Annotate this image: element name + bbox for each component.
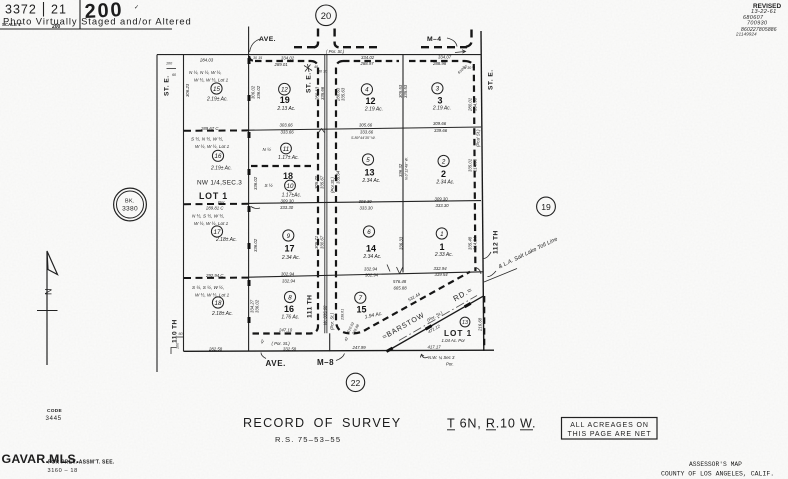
svg-text:335.67: 335.67 — [320, 175, 325, 189]
svg-text:21: 21 — [51, 3, 67, 17]
svg-text:336.02: 336.02 — [255, 299, 260, 313]
svg-text:302.94: 302.94 — [281, 272, 295, 277]
svg-text:ST. E.: ST. E. — [306, 72, 313, 93]
svg-text:N: N — [44, 289, 54, 296]
svg-text:333.66: 333.66 — [360, 130, 374, 135]
svg-text:330.67: 330.67 — [320, 235, 325, 249]
svg-text:339.66: 339.66 — [434, 128, 448, 133]
svg-text:332.58: 332.58 — [283, 346, 297, 351]
svg-text:22: 22 — [351, 378, 361, 388]
svg-text:17: 17 — [214, 229, 221, 236]
svg-text:9: 9 — [287, 233, 291, 240]
svg-text:ST. E.: ST. E. — [488, 69, 495, 90]
svg-text:1.76 Ac.: 1.76 Ac. — [281, 314, 299, 320]
svg-text:247.10: 247.10 — [278, 327, 293, 332]
svg-text:8: 8 — [288, 294, 292, 301]
svg-text:334.02: 334.02 — [361, 55, 375, 60]
svg-text:RECORD OF SURVEY: RECORD OF SURVEY — [243, 416, 401, 430]
svg-text:216.68: 216.68 — [478, 317, 483, 332]
svg-text:Por.: Por. — [218, 200, 226, 205]
svg-text:R.S. 75–53–55: R.S. 75–53–55 — [275, 435, 341, 444]
svg-text:3: 3 — [437, 95, 442, 105]
svg-text:15: 15 — [213, 86, 220, 93]
svg-text:100: 100 — [166, 62, 173, 66]
svg-text:332.94: 332.94 — [282, 279, 296, 284]
svg-text:COUNTY OF LOS ANGELES, CALIF.: COUNTY OF LOS ANGELES, CALIF. — [661, 470, 774, 477]
svg-text:1.04 Ac. Por: 1.04 Ac. Por — [442, 338, 466, 343]
svg-text:Por.: Por. — [446, 361, 454, 366]
svg-text:1: 1 — [440, 231, 443, 238]
svg-text:Photo Virtually Staged and/or: Photo Virtually Staged and/or Altered — [3, 16, 192, 27]
svg-text:2.34 Ac.: 2.34 Ac. — [435, 179, 454, 185]
svg-text:2.19 Ac.: 2.19 Ac. — [364, 106, 383, 112]
svg-text:15: 15 — [356, 304, 366, 314]
svg-text:2.18± Ac.: 2.18± Ac. — [215, 237, 237, 243]
svg-text:12: 12 — [281, 87, 288, 94]
svg-text:335.64: 335.64 — [336, 170, 341, 184]
svg-text:305.71: 305.71 — [314, 235, 319, 249]
svg-text:2.19± Ac.: 2.19± Ac. — [210, 166, 232, 172]
svg-text:1.17±Ac.: 1.17±Ac. — [282, 192, 302, 198]
svg-text:111 TH: 111 TH — [307, 295, 314, 318]
svg-text:18: 18 — [283, 171, 293, 181]
svg-text:16: 16 — [284, 304, 294, 314]
svg-text:ASSESSOR'S MAP: ASSESSOR'S MAP — [689, 461, 742, 468]
svg-text:284.03: 284.03 — [199, 58, 214, 63]
svg-text:19: 19 — [280, 95, 290, 105]
svg-text:W. 335.68: W. 335.68 — [323, 305, 328, 325]
svg-text:30 30: 30 30 — [318, 70, 328, 74]
svg-text:665.88: 665.88 — [394, 285, 408, 290]
svg-text:20: 20 — [321, 10, 331, 21]
svg-text:ALL ACREAGES ON: ALL ACREAGES ON — [570, 422, 649, 429]
svg-text:T 6N, R.10 W.: T 6N, R.10 W. — [447, 417, 536, 431]
svg-text:W ½, W ½, Lot 1: W ½, W ½, Lot 1 — [195, 143, 230, 149]
svg-text:M–4: M–4 — [427, 36, 441, 43]
svg-text:21149924: 21149924 — [735, 32, 757, 37]
svg-text:3380: 3380 — [122, 206, 138, 213]
svg-text:N.0°12'48" W.: N.0°12'48" W. — [405, 157, 409, 180]
svg-text:306.02: 306.02 — [251, 85, 256, 99]
svg-text:(Por. St.): (Por. St.) — [330, 312, 335, 330]
svg-text:BK.: BK. — [125, 199, 135, 205]
svg-text:2.19± Ac.: 2.19± Ac. — [206, 97, 228, 103]
svg-text:289.01: 289.01 — [274, 62, 289, 67]
svg-text:336.33: 336.33 — [399, 236, 404, 250]
svg-text:292.94 C: 292.94 C — [205, 273, 224, 278]
svg-text:110 TH: 110 TH — [172, 319, 179, 343]
svg-text:(Pca' St.): (Pca' St.) — [476, 129, 481, 147]
svg-text:335.63: 335.63 — [341, 87, 346, 101]
svg-text:30 15: 30 15 — [253, 56, 263, 60]
svg-text:3372: 3372 — [5, 3, 37, 17]
svg-text:238.61: 238.61 — [341, 309, 345, 321]
svg-text:280.13: 280.13 — [315, 86, 320, 101]
svg-text:289.67 C: 289.67 C — [200, 126, 219, 131]
svg-text:7: 7 — [359, 295, 363, 302]
svg-text:( Por. St.): ( Por. St.) — [326, 49, 345, 54]
svg-text:335.66: 335.66 — [320, 86, 325, 100]
svg-text:336.02: 336.02 — [253, 238, 258, 252]
svg-text:306.23: 306.23 — [185, 83, 190, 97]
svg-text:4: 4 — [365, 87, 369, 94]
svg-text:12: 12 — [365, 96, 375, 106]
svg-text:N.W. ¼ Sec 3: N.W. ¼ Sec 3 — [428, 355, 455, 360]
svg-text:336.02: 336.02 — [253, 176, 258, 190]
svg-text:309.30: 309.30 — [435, 196, 449, 201]
svg-text:2.34 Ac.: 2.34 Ac. — [361, 178, 380, 184]
svg-text:N ½, N ½, W ½,: N ½, N ½, W ½, — [189, 69, 222, 75]
svg-text:W ½, W ½, Lot 1: W ½, W ½, Lot 1 — [194, 77, 229, 83]
svg-text:303.66: 303.66 — [280, 122, 294, 127]
svg-text:2.33 Ac.: 2.33 Ac. — [434, 252, 453, 258]
svg-text:332.94: 332.94 — [434, 266, 448, 271]
svg-text:2.18± Ac.: 2.18± Ac. — [211, 311, 233, 317]
svg-text:AVE.: AVE. — [259, 36, 276, 43]
svg-text:247.99: 247.99 — [352, 345, 367, 350]
svg-text:1: 1 — [439, 242, 444, 252]
svg-text:100: 100 — [176, 342, 180, 349]
svg-text:2.19 Ac.: 2.19 Ac. — [432, 106, 451, 112]
svg-text:2: 2 — [441, 169, 446, 179]
svg-text:AVE.: AVE. — [266, 359, 286, 368]
svg-text:333.30: 333.30 — [436, 203, 450, 208]
svg-text:( Por. St.): ( Por. St.) — [272, 341, 291, 346]
svg-text:3: 3 — [436, 86, 440, 93]
svg-text:332.94: 332.94 — [364, 267, 378, 272]
svg-text:3160 – 18: 3160 – 18 — [48, 468, 78, 474]
svg-text:S ½, N ½, W ½,: S ½, N ½, W ½, — [191, 136, 223, 142]
svg-text:N ½: N ½ — [263, 146, 272, 152]
svg-text:334.07: 334.07 — [438, 54, 452, 59]
svg-text:576.48: 576.48 — [393, 279, 407, 284]
svg-text:288.97: 288.97 — [360, 61, 375, 66]
svg-text:NW 1/4,SEC.3: NW 1/4,SEC.3 — [197, 180, 242, 187]
svg-text:17: 17 — [284, 243, 294, 253]
svg-text:13: 13 — [364, 168, 374, 178]
svg-text:(Por.St.): (Por.St.) — [330, 177, 335, 193]
svg-text:305.70: 305.70 — [314, 175, 319, 189]
svg-text:336.02: 336.02 — [256, 85, 261, 99]
svg-text:S ½, S ½, W ½,: S ½, S ½, W ½, — [192, 284, 224, 290]
svg-text:13: 13 — [462, 320, 468, 326]
svg-text:18: 18 — [215, 300, 222, 307]
svg-text:334.98: 334.98 — [473, 97, 478, 111]
svg-text:THIS PAGE ARE NET: THIS PAGE ARE NET — [567, 431, 651, 438]
svg-text:303.30: 303.30 — [359, 199, 373, 204]
svg-text:333.66: 333.66 — [281, 129, 295, 134]
svg-text:302.94: 302.94 — [365, 273, 379, 278]
svg-text:333.30: 333.30 — [280, 205, 294, 210]
svg-text:333.30: 333.30 — [360, 206, 374, 211]
svg-text:282.58: 282.58 — [208, 347, 223, 352]
svg-text:314.98: 314.98 — [472, 158, 477, 172]
svg-text:314.84: 314.84 — [472, 236, 477, 250]
svg-text:S ½: S ½ — [265, 182, 273, 188]
svg-text:700930: 700930 — [747, 21, 767, 27]
svg-text:2.13 Ac.: 2.13 Ac. — [276, 106, 295, 112]
svg-text:5: 5 — [366, 157, 370, 164]
svg-text:112 TH: 112 TH — [493, 230, 500, 254]
svg-text:336.32: 336.32 — [398, 163, 403, 177]
svg-text:11: 11 — [283, 146, 289, 153]
svg-text:FOR PREV. ASSM'T. SEE.: FOR PREV. ASSM'T. SEE. — [48, 460, 115, 466]
svg-text:N ½, S ½, W ½,: N ½, S ½, W ½, — [192, 213, 224, 219]
svg-text:19: 19 — [541, 202, 551, 212]
svg-text:288.98: 288.98 — [432, 61, 447, 66]
svg-text:6: 6 — [367, 229, 371, 236]
svg-text:309.66: 309.66 — [433, 121, 447, 126]
svg-text:1.17± Ac.: 1.17± Ac. — [278, 155, 299, 161]
svg-text:ST. E.: ST. E. — [164, 75, 171, 96]
svg-text:417.17: 417.17 — [428, 344, 442, 349]
svg-text:✓: ✓ — [134, 5, 139, 11]
svg-text:309.30: 309.30 — [281, 198, 295, 203]
svg-text:W ½, W ½, Lot 1: W ½, W ½, Lot 1 — [195, 292, 230, 298]
svg-text:2.34 Ac.: 2.34 Ac. — [362, 254, 381, 260]
svg-text:S.89°44'35" W.: S.89°44'35" W. — [351, 136, 376, 140]
svg-text:CODE: CODE — [47, 408, 63, 414]
svg-text:335.53: 335.53 — [403, 84, 408, 98]
svg-text:334.02: 334.02 — [281, 55, 295, 60]
svg-text:10: 10 — [287, 183, 294, 190]
svg-text:2: 2 — [441, 158, 446, 165]
svg-text:3445: 3445 — [46, 415, 62, 422]
svg-text:2.34 Ac.: 2.34 Ac. — [281, 255, 300, 261]
svg-text:305.66: 305.66 — [359, 123, 373, 128]
svg-text:W ½, W ½, Lot 1: W ½, W ½, Lot 1 — [194, 220, 229, 226]
svg-text:289.81 C: 289.81 C — [205, 206, 224, 211]
svg-text:LOT 1: LOT 1 — [444, 329, 472, 338]
svg-text:30 30: 30 30 — [462, 66, 472, 70]
svg-text:14: 14 — [366, 243, 376, 253]
svg-text:16: 16 — [215, 153, 222, 160]
svg-text:319.54: 319.54 — [435, 272, 449, 277]
svg-text:M–8: M–8 — [317, 358, 334, 367]
